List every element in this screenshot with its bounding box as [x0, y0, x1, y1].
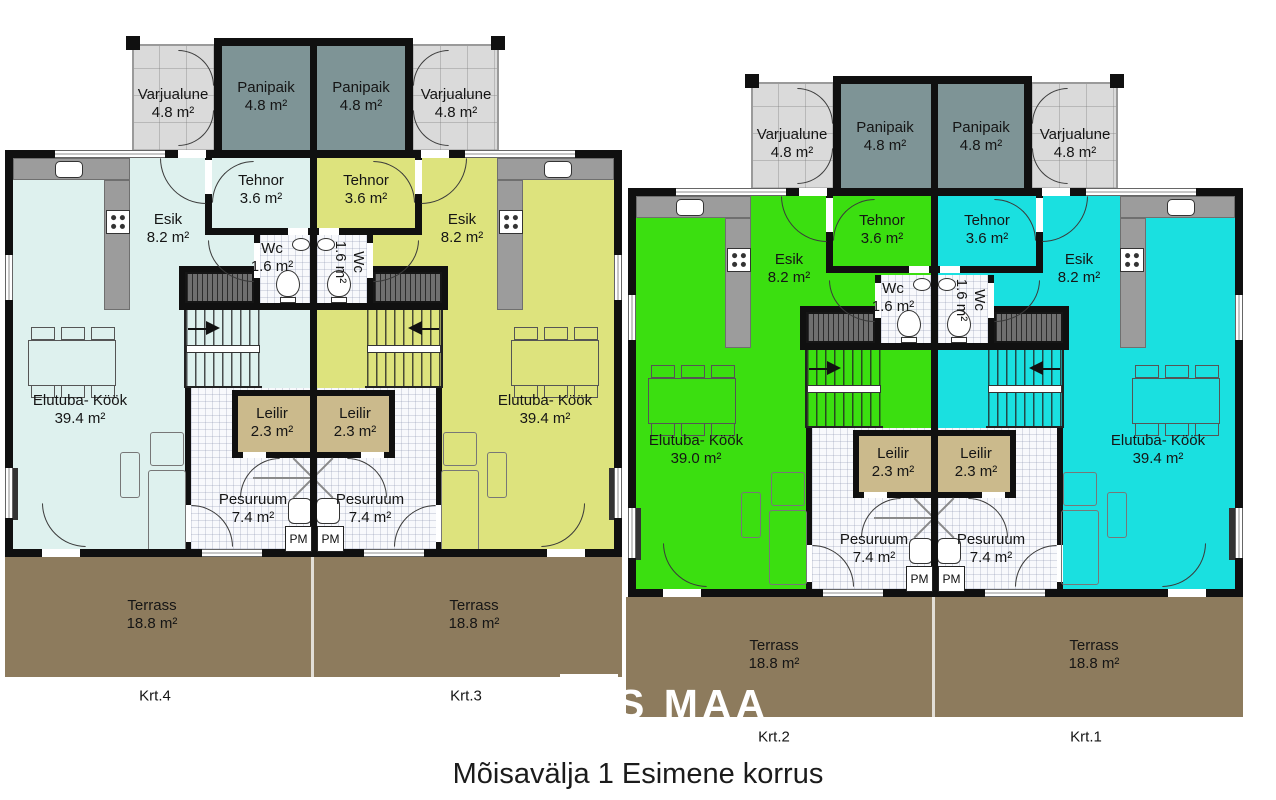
washing-machine: PM: [906, 566, 933, 592]
room-label-varjualune: Varjualune4.8 m²: [1040, 126, 1111, 162]
room-label-varjualune: Varjualune4.8 m²: [757, 126, 828, 162]
washing-machine: PM: [938, 566, 965, 592]
washing-machine: PM: [317, 526, 344, 552]
room-label-esik-krt4: Esik8.2 m²: [147, 211, 190, 247]
room-label-panipaik: Panipaik4.8 m²: [237, 79, 295, 115]
floor-plan: PM PM PM PM S MAA Varjualune4.8 m² Panip…: [0, 0, 1276, 800]
room-label-pesuruum-krt1: Pesuruum7.4 m²: [957, 531, 1025, 567]
unit-label-krt3: Krt.3: [450, 688, 482, 705]
room-label-leilir-krt4: Leilir2.3 m²: [251, 405, 294, 441]
room-label-varjualune: Varjualune4.8 m²: [138, 86, 209, 122]
room-label-leilir-krt2: Leilir2.3 m²: [872, 445, 915, 481]
room-label-pesuruum-krt4: Pesuruum7.4 m²: [219, 491, 287, 527]
room-label-wc-krt2: Wc1.6 m²: [872, 280, 915, 316]
room-label-esik-krt3: Esik8.2 m²: [441, 211, 484, 247]
room-label-pesuruum-krt3: Pesuruum7.4 m²: [336, 491, 404, 527]
room-label-tehnor-krt3: Tehnor3.6 m²: [343, 172, 389, 208]
room-label-esik-krt2: Esik8.2 m²: [768, 251, 811, 287]
room-label-terrass-krt1: Terrass18.8 m²: [1069, 637, 1120, 673]
room-label-elutuba-krt4: Elutuba- Köök39.4 m²: [33, 392, 127, 428]
room-label-wc-krt3: Wc1.6 m²: [331, 241, 367, 284]
room-label-elutuba-krt1: Elutuba- Köök39.4 m²: [1111, 432, 1205, 468]
watermark-text: S MAA: [617, 681, 769, 728]
unit-label-krt4: Krt.4: [139, 688, 171, 705]
room-label-tehnor-krt1: Tehnor3.6 m²: [964, 212, 1010, 248]
room-label-panipaik: Panipaik4.8 m²: [856, 119, 914, 155]
room-label-elutuba-krt2: Elutuba- Köök39.0 m²: [649, 432, 743, 468]
room-label-elutuba-krt3: Elutuba- Köök39.4 m²: [498, 392, 592, 428]
room-label-pesuruum-krt2: Pesuruum7.4 m²: [840, 531, 908, 567]
room-label-leilir-krt3: Leilir2.3 m²: [334, 405, 377, 441]
room-label-tehnor-krt2: Tehnor3.6 m²: [859, 212, 905, 248]
room-label-panipaik: Panipaik4.8 m²: [952, 119, 1010, 155]
room-label-terrass-krt4: Terrass18.8 m²: [127, 597, 178, 633]
room-label-leilir-krt1: Leilir2.3 m²: [955, 445, 998, 481]
washing-machine: PM: [285, 526, 312, 552]
room-label-panipaik: Panipaik4.8 m²: [332, 79, 390, 115]
room-label-esik-krt1: Esik8.2 m²: [1058, 251, 1101, 287]
labels-layer: PM PM PM PM S MAA Varjualune4.8 m² Panip…: [0, 0, 1276, 800]
unit-label-krt1: Krt.1: [1070, 729, 1102, 746]
room-label-wc-krt4: Wc1.6 m²: [251, 240, 294, 276]
room-label-varjualune: Varjualune4.8 m²: [421, 86, 492, 122]
watermark-block: [560, 674, 618, 719]
room-label-terrass-krt3: Terrass18.8 m²: [449, 597, 500, 633]
room-label-tehnor-krt4: Tehnor3.6 m²: [238, 172, 284, 208]
plan-title: Mõisavälja 1 Esimene korrus: [0, 758, 1276, 791]
room-label-terrass-krt2: Terrass18.8 m²: [749, 637, 800, 673]
unit-label-krt2: Krt.2: [758, 729, 790, 746]
room-label-wc-krt1: Wc1.6 m²: [952, 279, 988, 322]
